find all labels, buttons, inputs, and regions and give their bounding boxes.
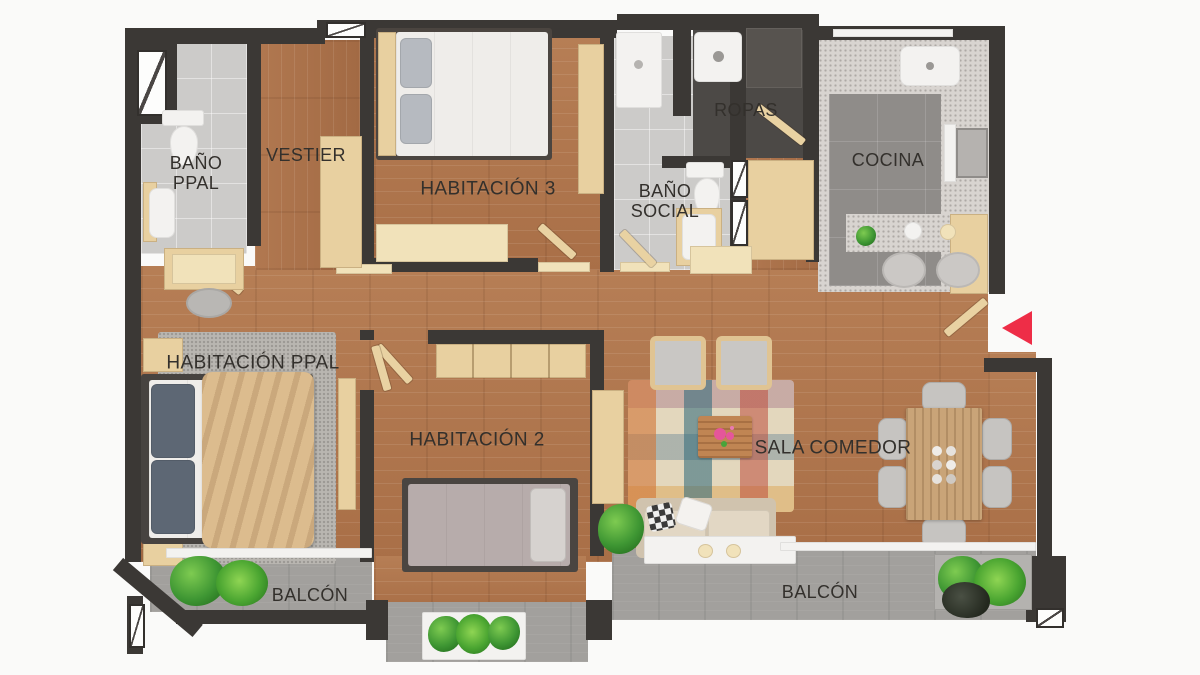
wall-balcony-bottom [176, 610, 372, 624]
cocina-floor-center [829, 94, 941, 286]
dining-chair-right-2 [982, 466, 1012, 508]
wall-kitchen-right [989, 26, 1005, 294]
threshold-bano-social [620, 262, 670, 272]
toilet-tank-social [686, 162, 724, 178]
label-cocina: COCINA [852, 150, 924, 170]
bar-plate-1 [904, 222, 922, 240]
wall-bano-ppal-right [247, 28, 261, 246]
window-bano-social-1 [731, 160, 748, 198]
threshold-hab3 [538, 262, 590, 272]
cabinet-ropas [746, 28, 802, 88]
closet-habitacion-2 [436, 344, 586, 378]
stove [944, 124, 956, 182]
washer-knob [713, 51, 724, 62]
coffee-table-flowers [714, 428, 726, 440]
wall-vestier-right [360, 28, 374, 272]
threshold-balcon-der [780, 542, 1036, 551]
dining-chair-left-2 [878, 466, 908, 508]
dining-chair-right-1 [982, 418, 1012, 460]
wall-hab2-north [428, 330, 604, 344]
entry-arrow-icon [1002, 311, 1032, 345]
label-bano-social: BAÑO SOCIAL [617, 181, 713, 221]
dining-dishes [932, 446, 942, 456]
label-bano-ppal: BAÑO PPAL [153, 153, 239, 193]
window-balcon-der [1036, 608, 1064, 628]
bed3-headboard [378, 32, 396, 156]
wall-top-1 [125, 28, 325, 44]
closet-corridor [748, 160, 814, 260]
bench-habitacion-ppal [338, 378, 356, 510]
bed3-pillow-1 [400, 38, 432, 88]
sink-ppal [149, 188, 175, 238]
bar-plate-2 [940, 224, 956, 240]
bed3-pillow-2 [400, 94, 432, 144]
desk-chair [186, 288, 232, 318]
bedppal-pillow-2 [151, 460, 195, 534]
window-bano-social-2 [731, 200, 748, 246]
dining-table [906, 408, 982, 520]
label-vestier: VESTIER [266, 145, 346, 165]
oven-door [956, 128, 988, 178]
desk-nook-top [172, 254, 236, 284]
window-balcon-izq [129, 604, 145, 648]
console-knob-2 [726, 544, 741, 558]
shower-drain [634, 60, 643, 69]
bedppal-blanket [202, 372, 314, 548]
armchair-1 [650, 336, 706, 390]
bar-stool-1 [882, 252, 926, 288]
kitchen-window-strip [833, 29, 953, 37]
bar-stool-2 [936, 252, 980, 288]
toilet-tank-ppal [162, 110, 204, 126]
desk-habitacion-3 [376, 224, 508, 262]
label-sala-comedor: SALA COMEDOR [755, 437, 912, 458]
console-balcon [644, 536, 796, 564]
wall-right-sala [1037, 358, 1052, 562]
label-habitacion-2: HABITACIÓN 2 [409, 429, 544, 450]
kitchen-sink-drain [926, 62, 934, 70]
sideboard-sala [592, 390, 624, 504]
shower-bano-social [616, 32, 662, 108]
label-balcon-der: BALCÓN [782, 582, 858, 602]
window-bano-ppal [137, 50, 167, 116]
wall-alcove-col-right [586, 600, 612, 640]
closet-habitacion-3 [578, 44, 604, 194]
planter-plant-2 [456, 614, 492, 654]
wall-habppal-east [360, 390, 374, 562]
sofa-pillow-checkered [646, 502, 677, 533]
window-hab3-top [326, 22, 366, 38]
label-habitacion-3: HABITACIÓN 3 [420, 178, 555, 199]
plant-balcon-der-dark [942, 582, 990, 618]
bed2-pillow [530, 488, 566, 562]
cabinet-hall [690, 246, 752, 274]
label-balcon-izq: BALCÓN [272, 585, 348, 605]
console-knob-1 [698, 544, 713, 558]
bedppal-pillow-1 [151, 384, 195, 458]
armchair-2 [716, 336, 772, 390]
label-ropas: ROPAS [714, 100, 778, 120]
floor-plan: BAÑO PPAL VESTIER HABITACIÓN 3 BAÑO SOCI… [0, 0, 1200, 675]
wall-habppal-east-stub [360, 330, 374, 340]
wall-shower-divider [673, 20, 691, 116]
label-habitacion-ppal: HABITACIÓN PPAL [166, 352, 339, 373]
plant-balcon-izq-2 [216, 560, 268, 606]
